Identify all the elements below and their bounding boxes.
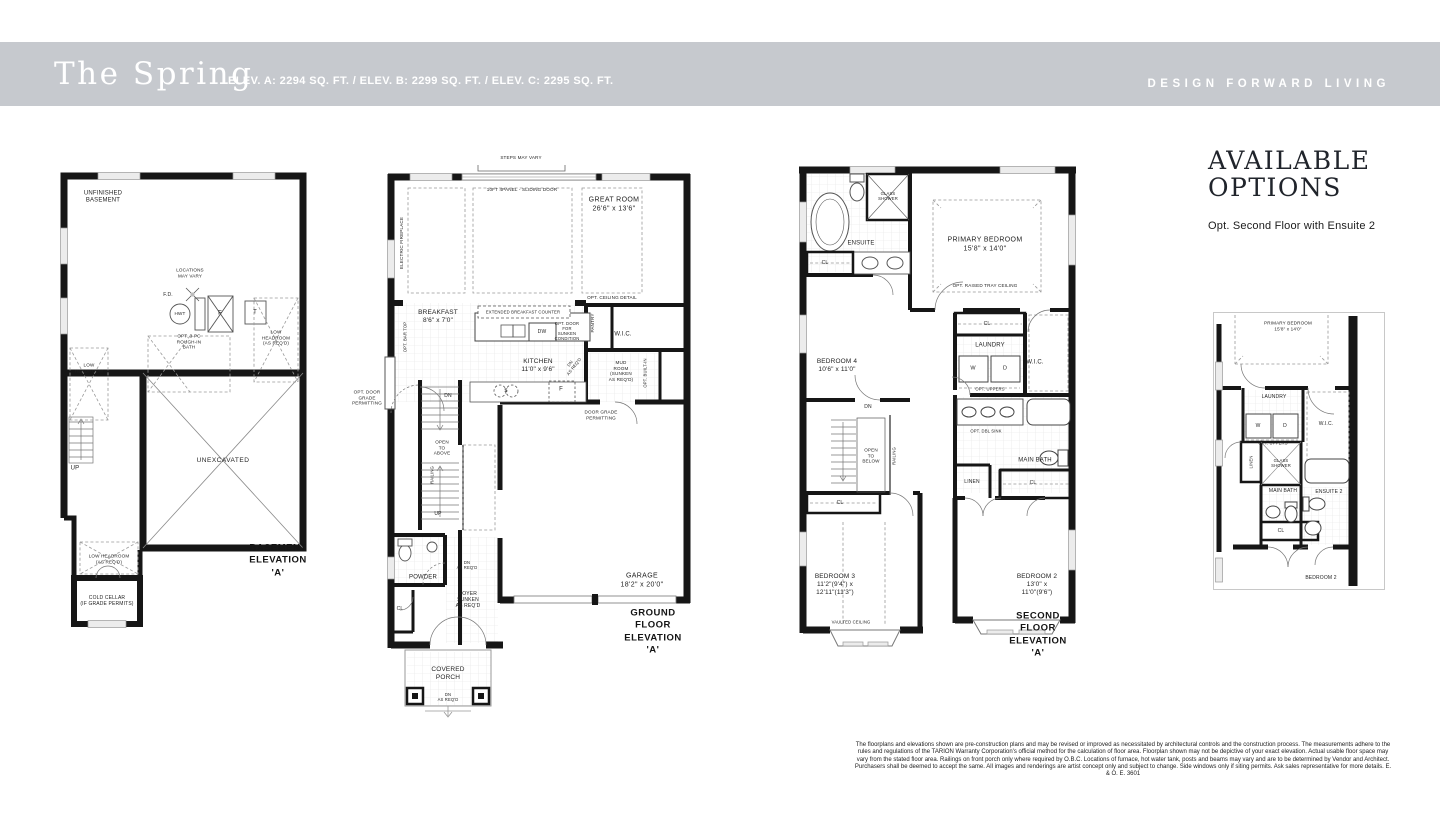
label-kitchen: KITCHEN 11'0" x 9'6": [521, 358, 554, 374]
label-ceiling-detail: OPT. CEILING DETAIL: [587, 295, 637, 301]
label-floor-drain: F.D.: [163, 292, 173, 298]
label-unexcavated: UNEXCAVATED: [197, 457, 250, 465]
label-vaulted-ceiling: VAULTED CEILING: [832, 619, 871, 624]
label-bar-top: OPT. BAR TOP: [402, 322, 407, 353]
brand-tagline: DESIGN FORWARD LIVING: [1147, 78, 1390, 90]
label-dn: DN: [444, 393, 452, 399]
label-hot-water-tank: HWT: [175, 311, 186, 317]
ground-floor-plan: STEPS MAY VARY 10FT 4PANEL - SLIDING DOO…: [350, 145, 695, 720]
label-dn-second: DN: [864, 404, 872, 410]
label-steps-vary: STEPS MAY VARY: [500, 155, 541, 161]
label-opt-washer: W: [1256, 423, 1261, 429]
label-low-headroom-bottom: LOW HEADROOM (AS REQ'D): [89, 553, 130, 564]
label-closet-ground: CL: [397, 606, 404, 612]
label-cl-bed2: CL: [1030, 480, 1037, 486]
label-cl-laundry: CL: [984, 321, 991, 327]
label-railing-ground: RAILING: [429, 466, 434, 484]
label-opt-uppers: OPT. UPPERS: [975, 386, 1004, 391]
label-primary-bedroom: PRIMARY BEDROOM 15'8" x 14'0": [947, 236, 1022, 253]
label-tank: T: [253, 309, 257, 316]
label-wic-ground: W.I.C.: [614, 331, 631, 338]
label-open-to-below: OPEN TO BELOW: [862, 448, 879, 465]
label-washer: W: [970, 366, 975, 373]
label-opt-bedroom2: BEDROOM 2: [1305, 575, 1336, 581]
label-sliding-door: 10FT 4PANEL - SLIDING DOOR: [487, 187, 557, 193]
label-stairs-up: UP: [71, 465, 80, 472]
label-porch-dn: DN AS REQ'D: [438, 692, 459, 702]
label-kitchen-sink: S: [504, 388, 508, 394]
label-open-to-above: OPEN TO ABOVE: [434, 440, 451, 457]
label-tray-ceiling: OPT. RAISED TRAY CEILING: [953, 283, 1018, 289]
label-door-grade: DOOR GRADE PERMITTING: [585, 409, 618, 420]
label-bedroom2: BEDROOM 2 13'0" x 11'0"(9'6"): [1017, 573, 1057, 597]
label-low-headroom-left: LOW HEADROOM: [75, 362, 103, 373]
label-opt-primary-bedroom: PRIMARY BEDROOM 15'8" x 14'0": [1264, 320, 1312, 331]
floorplan-sheet: The Spring ELEV. A: 2294 SQ. FT. / ELEV.…: [0, 0, 1440, 816]
second-caption: SECOND FLOOR ELEVATION 'A': [1009, 610, 1066, 659]
label-bedroom4: BEDROOM 4 10'6" x 11'0": [817, 358, 857, 374]
label-pantry: PANTRY: [590, 313, 596, 332]
label-railing-second: RAILING: [891, 447, 896, 465]
label-garage: GARAGE 18'2" x 20'0": [621, 572, 664, 589]
label-dishwasher: DW: [538, 329, 547, 335]
label-main-bath: MAIN BATH: [1018, 457, 1052, 464]
label-fridge: F: [559, 386, 563, 393]
options-ensuite2-plan: PRIMARY BEDROOM 15'8" x 14'0" LAUNDRY W …: [1213, 312, 1385, 590]
label-locations-vary: LOCATIONS MAY VARY: [176, 267, 204, 278]
label-sunken-door: OPT. DOOR FOR SUNKEN CONDITION: [555, 321, 580, 342]
label-opt-uppers2: OPT. UPPERS: [1258, 440, 1287, 445]
legal-disclaimer: The floorplans and elevations shown are …: [853, 742, 1393, 779]
label-bedroom3: BEDROOM 3 11'2"(9'4") x 12'11"(11'3"): [815, 573, 855, 597]
label-dryer: D: [1003, 366, 1007, 373]
ground-caption: GROUND FLOOR ELEVATION 'A': [624, 607, 681, 656]
label-opt-main-bath: MAIN BATH: [1269, 488, 1297, 494]
label-electric-fireplace: ELECTRIC FIREPLACE: [399, 217, 405, 269]
label-dbl-sink: OPT. DBL SINK: [970, 428, 1001, 433]
label-wic-second: W.I.C.: [1026, 359, 1043, 366]
second-floor-plan: GLASS SHOWER ENSUITE CL PRIMARY BEDROOM …: [795, 160, 1080, 655]
label-mud-room: MUD ROOM (SUNKEN AS REQ'D): [609, 360, 633, 382]
options-floorplan-drawing: [1213, 312, 1385, 590]
label-opt-linen: LINEN: [1248, 455, 1253, 468]
label-opt-glass-shower: GLASS SHOWER: [1271, 458, 1291, 468]
available-options-subtitle: Opt. Second Floor with Ensuite 2: [1208, 220, 1375, 232]
label-cl-bed3: CL: [837, 500, 844, 506]
label-up: UP: [434, 511, 441, 517]
label-breakfast: BREAKFAST 8'6" x 7'0": [418, 309, 458, 325]
label-unfinished-basement: UNFINISHED BASEMENT: [84, 191, 122, 206]
label-low-headroom-right: LOW HEADROOM (AS REQ'D): [259, 330, 293, 347]
label-opt-cl: CL: [1278, 528, 1285, 534]
label-breakfast-counter: EXTENDED BREAKFAST COUNTER: [486, 309, 560, 314]
basement-caption: BASEMENT ELEVATION 'A': [249, 542, 306, 579]
label-covered-porch: COVERED PORCH: [431, 666, 464, 682]
available-options-title: AVAILABLE OPTIONS: [1208, 148, 1370, 201]
label-opt-dryer: D: [1283, 423, 1287, 429]
label-laundry: LAUNDRY: [975, 342, 1005, 349]
label-furnace: F: [218, 310, 222, 317]
label-opt-door-grade: OPT. DOOR GRADE PERMITTING: [352, 390, 382, 407]
label-cl-ensuite: CL: [822, 260, 829, 266]
label-opt-roughin-bath: OPT. 3-PC ROUGH-IN BATH: [177, 334, 201, 351]
label-cold-cellar: COLD CELLAR (IF GRADE PERMITS): [80, 595, 133, 607]
label-opt-wic: W.I.C.: [1319, 421, 1334, 427]
label-great-room: GREAT ROOM 26'6" x 13'6": [589, 196, 640, 213]
label-dn-as-reqd: DN AS REQ'D: [457, 560, 478, 570]
label-opt-laundry: LAUNDRY: [1262, 394, 1287, 400]
label-built-in: OPT. BUILT-IN: [642, 358, 647, 387]
label-glass-shower: GLASS SHOWER: [878, 191, 898, 201]
label-powder: POWDER: [409, 574, 437, 581]
label-linen: LINEN: [964, 479, 979, 485]
label-foyer: FOYER SUNKEN AS REQ'D: [456, 591, 481, 609]
label-ensuite: ENSUITE: [847, 240, 874, 247]
plan-title: The Spring: [54, 56, 253, 92]
label-opt-ensuite2: ENSUITE 2: [1315, 489, 1342, 495]
elevation-specs: ELEV. A: 2294 SQ. FT. / ELEV. B: 2299 SQ…: [228, 75, 613, 87]
basement-plan: UNFINISHED BASEMENT LOCATIONS MAY VARY F…: [58, 170, 310, 640]
